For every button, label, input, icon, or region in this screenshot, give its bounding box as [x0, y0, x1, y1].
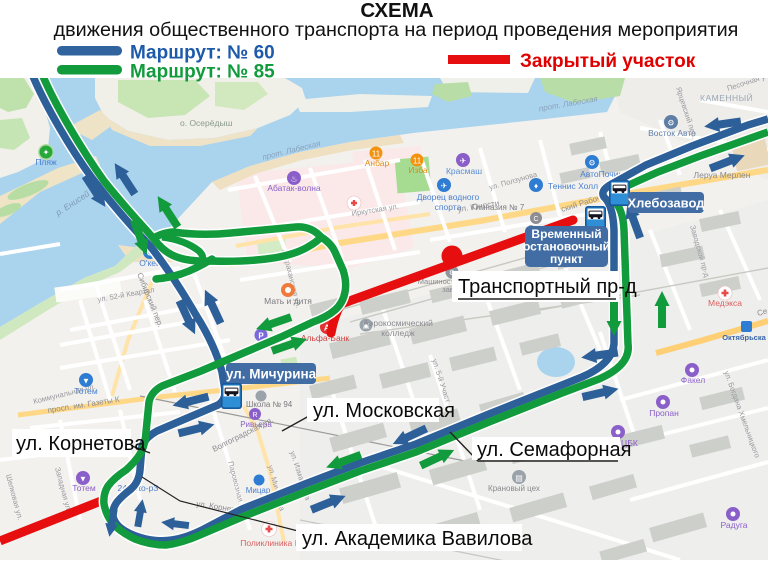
svg-text:ул. Мичурина: ул. Мичурина: [226, 367, 317, 382]
svg-text:Теннис Холл: Теннис Холл: [548, 181, 598, 191]
svg-text:Октябрьска: Октябрьска: [722, 333, 766, 342]
svg-text:о. Осерёдыш: о. Осерёдыш: [180, 118, 233, 128]
svg-text:колледж: колледж: [381, 328, 415, 338]
svg-text:Красмаш: Красмаш: [446, 166, 482, 176]
svg-text:С: С: [533, 216, 538, 223]
svg-text:Пропан: Пропан: [649, 408, 679, 418]
svg-text:Абатак-волна: Абатак-волна: [267, 183, 321, 193]
svg-text:Хлебозавод: Хлебозавод: [628, 196, 706, 211]
svg-text:Транспортный пр-д: Транспортный пр-д: [458, 276, 637, 298]
svg-text:Поликлиника №: Поликлиника №: [240, 538, 303, 548]
svg-text:ул. Корнетова: ул. Корнетова: [16, 433, 146, 455]
svg-text:▼: ▼: [82, 377, 90, 386]
svg-text:▤: ▤: [515, 474, 523, 483]
svg-text:Радуга: Радуга: [721, 520, 748, 530]
svg-text:Изба: Изба: [408, 165, 428, 175]
svg-text:Маршрут: № 85: Маршрут: № 85: [130, 62, 275, 83]
svg-text:пункт: пункт: [550, 252, 583, 266]
svg-text:⚙: ⚙: [667, 119, 674, 128]
svg-text:⚙: ⚙: [588, 159, 595, 168]
svg-text:Тотем: Тотем: [74, 386, 98, 396]
svg-text:движения общественного транспо: движения общественного транспорта на пер…: [54, 19, 739, 41]
svg-text:Пляж: Пляж: [35, 157, 57, 167]
svg-text:♦: ♦: [534, 182, 538, 191]
svg-text:Дворец водного: Дворец водного: [417, 192, 480, 202]
svg-text:КАМЕННЫЙ: КАМЕННЫЙ: [700, 92, 753, 103]
svg-text:Школа № 94: Школа № 94: [246, 400, 293, 409]
svg-text:Мать и дитя: Мать и дитя: [264, 296, 312, 306]
svg-text:✦: ✦: [43, 148, 50, 157]
svg-text:Маршрут: № 60: Маршрут: № 60: [130, 43, 275, 64]
svg-text:ул. Академика Вавилова: ул. Академика Вавилова: [302, 528, 533, 550]
svg-text:ул. Семафорная: ул. Семафорная: [477, 439, 631, 461]
svg-text:✈: ✈: [441, 182, 448, 191]
svg-text:Альфа-Банк: Альфа-Банк: [301, 333, 350, 343]
svg-text:R: R: [252, 412, 257, 419]
svg-text:Крановый цех: Крановый цех: [488, 484, 540, 493]
svg-text:Аэрокосмический: Аэрокосмический: [363, 318, 433, 328]
svg-text:Закрытый участок: Закрытый участок: [520, 51, 696, 72]
svg-text:ул. Московская: ул. Московская: [313, 400, 455, 422]
svg-text:Анбар: Анбар: [365, 158, 390, 168]
svg-text:Медэкса: Медэкса: [708, 298, 742, 308]
svg-text:✈: ✈: [460, 157, 467, 166]
svg-text:Тотем: Тотем: [72, 483, 96, 493]
svg-text:Факел: Факел: [681, 375, 705, 385]
svg-text:Леруа Мерлен: Леруа Мерлен: [694, 170, 751, 180]
